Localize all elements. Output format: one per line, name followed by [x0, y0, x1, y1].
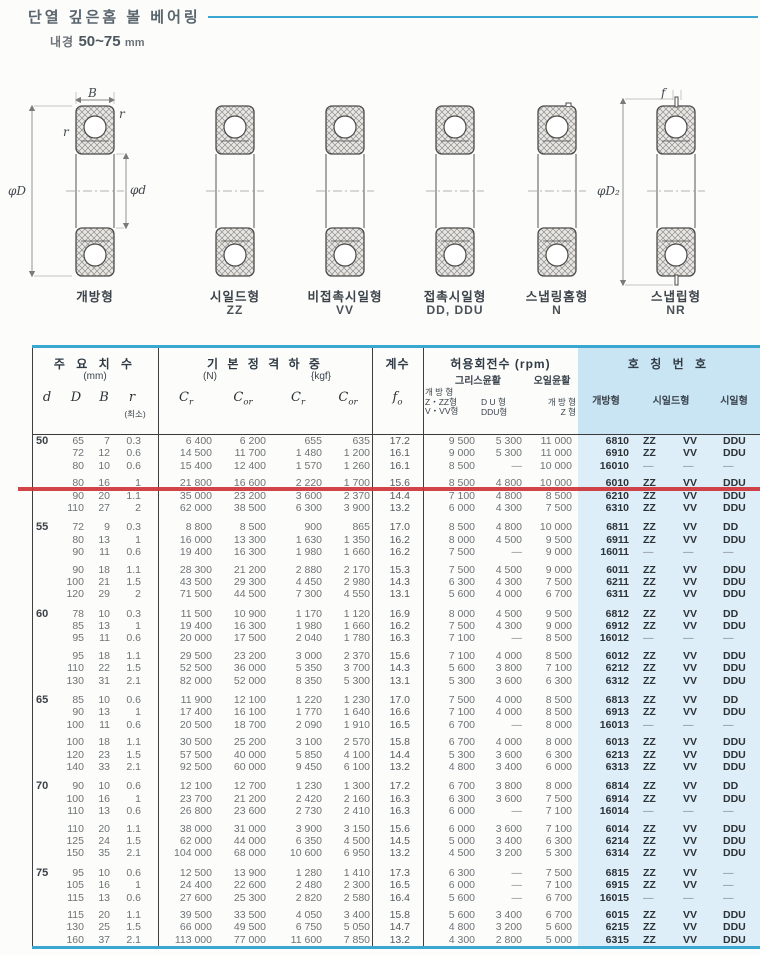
table-cell: — [718, 460, 760, 472]
bearing-table: 주 요 치 수 (mm) d D B r (최소) 기 본 정 격 하 중 (N… [32, 345, 760, 949]
table-cell: 21 [90, 576, 118, 588]
table-cell: 2 300 [324, 879, 372, 891]
table-cell: 3 150 [324, 823, 372, 835]
table-cell: ZZ [638, 534, 678, 546]
table-cell: 20 500 [158, 719, 214, 731]
table-cell: 16.1 [372, 460, 423, 472]
table-cell: 9 000 [526, 546, 578, 558]
table-cell: 3 600 [272, 490, 324, 502]
table-cell: 105 [58, 879, 90, 891]
bore-diameter-cell [32, 719, 58, 731]
bore-diameter-cell [32, 934, 58, 946]
table-cell: 0.6 [118, 780, 158, 792]
table-cell: 15.6 [372, 650, 423, 662]
header-col-cor: Cor [214, 390, 272, 408]
table-row: 160372.1113 00077 00011 6007 85013.24 30… [32, 934, 760, 946]
table-cell: VV [678, 921, 718, 933]
table-cell: 3 400 [479, 835, 526, 847]
table-cell: 16.9 [372, 608, 423, 620]
table-cell: 1 300 [324, 780, 372, 792]
table-cell: VV [678, 780, 718, 792]
table-cell: 4 300 [479, 576, 526, 588]
table-cell: 1 660 [324, 620, 372, 632]
table-cell: 13.2 [372, 502, 423, 514]
table-cell: 23 600 [214, 805, 272, 817]
table-cell: 16 300 [214, 546, 272, 558]
bore-diameter-cell [32, 793, 58, 805]
table-cell: 0.6 [118, 460, 158, 472]
table-cell: DDU [718, 921, 760, 933]
table-cell: — [638, 546, 678, 558]
table-cell: 14.3 [372, 662, 423, 674]
table-cell: 8 000 [526, 736, 578, 748]
bore-diameter-cell [32, 632, 58, 644]
table-cell: 6 300 [526, 835, 578, 847]
table-divider-factor [423, 348, 424, 946]
table-cell: 4 300 [479, 620, 526, 632]
page-title: 단열 깊은홈 볼 베어링 [28, 6, 201, 27]
table-cell: 6 000 [423, 879, 479, 891]
table-cell: 14.3 [372, 576, 423, 588]
table-cell: 17 400 [158, 706, 214, 718]
table-cell: 20 [90, 909, 118, 921]
table-cell: 68 000 [214, 847, 272, 859]
table-row: 9013117 40016 1001 7701 64016.67 1004 00… [32, 706, 760, 718]
table-cell: 2.1 [118, 675, 158, 687]
table-cell: 31 [90, 675, 118, 687]
table-cell: 13.2 [372, 934, 423, 946]
table-cell: 10 [90, 608, 118, 620]
table-cell: 9 500 [526, 534, 578, 546]
table-cell: 7 100 [526, 823, 578, 835]
table-cell: 14.7 [372, 921, 423, 933]
table-cell: DDU [718, 934, 760, 946]
table-cell: 6 100 [324, 761, 372, 773]
table-row: 8513119 40016 3001 9801 66016.27 5004 30… [32, 620, 760, 632]
table-cell: 5 300 [479, 447, 526, 459]
table-cell: DD [718, 780, 760, 792]
table-cell: — [479, 546, 526, 558]
header-col-cr: Cr [158, 390, 214, 408]
table-cell: 100 [58, 576, 90, 588]
table-cell: 12 700 [214, 780, 272, 792]
table-cell: VV [678, 675, 718, 687]
table-cell: 3 400 [479, 761, 526, 773]
table-cell: 110 [58, 662, 90, 674]
header-number-title: 호 칭 번 호 [578, 355, 760, 372]
table-cell: 125 [58, 835, 90, 847]
table-cell: 6215 [578, 921, 638, 933]
table-cell: 9 000 [526, 620, 578, 632]
table-cell: DDU [718, 502, 760, 514]
bore-diameter-cell [32, 761, 58, 773]
table-row: 130312.182 00052 0008 3505 30013.15 3003… [32, 675, 760, 687]
table-cell: 1.5 [118, 749, 158, 761]
table-cell: 13 300 [214, 534, 272, 546]
table-cell: — [479, 805, 526, 817]
table-cell: 1 230 [324, 694, 372, 706]
table-cell: 11 900 [158, 694, 214, 706]
table-cell: 635 [324, 435, 372, 447]
table-cell: 2 730 [272, 805, 324, 817]
table-cell: 90 [58, 546, 90, 558]
table-cell: 4 000 [479, 588, 526, 600]
table-cell: 72 [58, 521, 90, 533]
table-cell: ZZ [638, 608, 678, 620]
bore-diameter-cell [32, 620, 58, 632]
table-cell: 24 [90, 835, 118, 847]
table-row: 506570.36 4006 20065563517.29 5005 30011… [32, 435, 760, 447]
table-cell: 7 100 [526, 805, 578, 817]
table-cell: 7 100 [526, 879, 578, 891]
dim-r-label-left: r [63, 125, 70, 139]
table-cell: 10 [90, 694, 118, 706]
bore-diameter-cell [32, 490, 58, 502]
bore-diameter-cell [32, 805, 58, 817]
table-cell: — [718, 867, 760, 879]
header-col-B: B [90, 390, 118, 405]
table-cell: 90 [58, 490, 90, 502]
table-cell: 17.0 [372, 694, 423, 706]
table-cell: 18 [90, 736, 118, 748]
header-oil-label: 오일윤활 [526, 372, 578, 387]
table-cell: 7 500 [423, 620, 479, 632]
table-cell: 4 500 [423, 847, 479, 859]
table-cell: 2 410 [324, 805, 372, 817]
table-row: 115201.139 50033 5004 0503 40015.85 6003… [32, 909, 760, 921]
table-cell: 23 200 [214, 490, 272, 502]
table-cell: 0.3 [118, 608, 158, 620]
table-cell: 7 500 [526, 502, 578, 514]
table-cell: 23 700 [158, 793, 214, 805]
table-cell: 18 700 [214, 719, 272, 731]
header-number-shielded: 시일드형 [638, 392, 704, 407]
table-cell: 5 600 [526, 921, 578, 933]
table-row: 115130.627 60025 3002 8202 58016.45 600—… [32, 892, 760, 904]
table-cell: 130 [58, 675, 90, 687]
table-cell: — [479, 892, 526, 904]
table-row: 80100.615 40012 4001 5701 26016.18 500—1… [32, 460, 760, 472]
table-row: 120231.557 50040 0005 8504 10014.45 3003… [32, 749, 760, 761]
table-cell: ZZ [638, 793, 678, 805]
table-cell: 1 770 [272, 706, 324, 718]
table-cell: 0.6 [118, 546, 158, 558]
table-cell: 90 [58, 564, 90, 576]
table-cell: 13 [90, 620, 118, 632]
table-cell: ZZ [638, 675, 678, 687]
table-cell: ZZ [638, 650, 678, 662]
table-cell: 1 910 [324, 719, 372, 731]
table-cell: 5 300 [324, 675, 372, 687]
table-cell: DDU [718, 823, 760, 835]
table-row: 90110.619 40016 3001 9801 66016.27 500—9… [32, 546, 760, 558]
table-cell: 5 600 [423, 662, 479, 674]
header-col-d: d [32, 390, 62, 405]
table-cell: 33 [90, 761, 118, 773]
table-cell: 0.6 [118, 694, 158, 706]
table-row: 72120.614 50011 7001 4801 20016.19 0005 … [32, 447, 760, 459]
table-cell: 2.1 [118, 761, 158, 773]
table-cell: 95 [58, 632, 90, 644]
table-cell: 3 600 [479, 823, 526, 835]
table-cell: 6814 [578, 780, 638, 792]
table-cell: DDU [718, 564, 760, 576]
table-row: 90181.128 30021 2002 8802 17015.37 5004 … [32, 564, 760, 576]
table-cell: 1 [118, 879, 158, 891]
table-cell: DDU [718, 749, 760, 761]
red-marker-line [18, 487, 760, 491]
table-cell: 85 [58, 620, 90, 632]
bearing-diagram-contact-seal [412, 88, 498, 298]
table-cell: 65 [58, 435, 90, 447]
table-cell: 16.3 [372, 793, 423, 805]
table-row: 95181.129 50023 2003 0002 37015.67 1004 … [32, 650, 760, 662]
table-cell: 3 600 [479, 793, 526, 805]
table-cell: 5 600 [423, 909, 479, 921]
table-cell: DDU [718, 650, 760, 662]
table-cell: 6 200 [214, 435, 272, 447]
bore-diameter-cell [32, 564, 58, 576]
table-cell: 3 800 [479, 780, 526, 792]
table-cell: 13.2 [372, 761, 423, 773]
table-cell: 110 [58, 805, 90, 817]
table-cell: 6 300 [272, 502, 324, 514]
table-cell: 8 500 [526, 706, 578, 718]
table-cell: 24 400 [158, 879, 214, 891]
table-cell: 3 100 [272, 736, 324, 748]
table-cell: 2 160 [324, 793, 372, 805]
table-cell: 6 350 [272, 835, 324, 847]
table-cell: 2.1 [118, 847, 158, 859]
table-cell: 2 980 [324, 576, 372, 588]
table-cell: 1.5 [118, 835, 158, 847]
bore-diameter-cell [32, 879, 58, 891]
table-cell: 0.6 [118, 805, 158, 817]
table-cell: VV [678, 662, 718, 674]
table-cell: — [678, 719, 718, 731]
table-cell: 1 660 [324, 546, 372, 558]
header-col-D: D [60, 390, 92, 405]
table-cell: 17.0 [372, 521, 423, 533]
table-cell: 1 480 [272, 447, 324, 459]
table-cell: 16010 [578, 460, 638, 472]
catalog-page: 단열 깊은홈 볼 베어링 내경 50~75 mm B r r φD φd [0, 0, 760, 955]
bore-diameter-cell [32, 576, 58, 588]
table-cell: 3 900 [272, 823, 324, 835]
table-cell: 6 300 [423, 793, 479, 805]
table-cell: 160 [58, 934, 90, 946]
table-cell: 8 350 [272, 675, 324, 687]
table-cell: 2 040 [272, 632, 324, 644]
bore-diameter-cell: 50 [32, 435, 58, 447]
table-cell: 92 500 [158, 761, 214, 773]
table-cell: DDU [718, 847, 760, 859]
table-cell: 5 000 [423, 835, 479, 847]
table-cell: 6 000 [423, 805, 479, 817]
table-cell: VV [678, 447, 718, 459]
table-cell: 6 400 [158, 435, 214, 447]
table-cell: — [718, 546, 760, 558]
table-cell: 11 [90, 719, 118, 731]
table-cell: 82 000 [158, 675, 214, 687]
table-cell: ZZ [638, 934, 678, 946]
table-cell: 0.3 [118, 435, 158, 447]
table-cell: 21 200 [214, 793, 272, 805]
table-cell: 44 000 [214, 835, 272, 847]
table-cell: 12 100 [158, 780, 214, 792]
table-cell: 6 000 [423, 823, 479, 835]
table-cell: 11 500 [158, 608, 214, 620]
table-cell: 14.5 [372, 835, 423, 847]
table-cell: 1 980 [272, 546, 324, 558]
table-cell: 1 630 [272, 534, 324, 546]
table-cell: 1 350 [324, 534, 372, 546]
table-cell: 16 000 [158, 534, 214, 546]
table-cell: 8 500 [526, 632, 578, 644]
table-cell: 7 100 [526, 662, 578, 674]
table-cell: 4 800 [479, 521, 526, 533]
table-cell: — [718, 879, 760, 891]
table-cell: 100 [58, 793, 90, 805]
table-divider-loads [372, 348, 373, 946]
table-cell: ZZ [638, 694, 678, 706]
bearing-diagram-open: B r r φD φd [8, 88, 158, 298]
table-cell: 16.2 [372, 534, 423, 546]
table-cell: 100 [58, 719, 90, 731]
bore-diameter-cell [32, 847, 58, 859]
table-cell: 2 580 [324, 892, 372, 904]
table-cell: 52 000 [214, 675, 272, 687]
table-cell: 1.1 [118, 650, 158, 662]
table-cell: 2 570 [324, 736, 372, 748]
table-cell: 60 000 [214, 761, 272, 773]
dim-phiD2-label: φD₂ [597, 184, 620, 198]
table-cell: 6311 [578, 588, 638, 600]
table-cell: 5 300 [526, 847, 578, 859]
table-cell: 16015 [578, 892, 638, 904]
table-cell: 21 200 [214, 564, 272, 576]
table-cell: 5 300 [423, 675, 479, 687]
table-row: 90201.135 00023 2003 6002 37014.47 1004 … [32, 490, 760, 502]
table-cell: 31 000 [214, 823, 272, 835]
bore-range-value: 50~75 [78, 33, 120, 50]
table-cell: 4 100 [324, 749, 372, 761]
bore-diameter-cell [32, 447, 58, 459]
table-cell: 12 [90, 447, 118, 459]
table-cell: 8 500 [214, 521, 272, 533]
table-cell: 6011 [578, 564, 638, 576]
table-cell: — [638, 460, 678, 472]
table-cell: 6 300 [526, 675, 578, 687]
table-row: 10516124 40022 6002 4802 30016.56 000—7 … [32, 879, 760, 891]
bore-diameter-cell [32, 662, 58, 674]
table-cell: 115 [58, 892, 90, 904]
table-cell: 7 100 [423, 650, 479, 662]
table-row: 130251.566 00049 5006 7505 05014.74 8003… [32, 921, 760, 933]
table-cell: 16 [90, 793, 118, 805]
table-cell: 6210 [578, 490, 638, 502]
table-cell: 25 [90, 921, 118, 933]
table-cell: 4 300 [423, 934, 479, 946]
table-cell: 16.2 [372, 546, 423, 558]
table-cell: 6913 [578, 706, 638, 718]
table-cell: 80 [58, 460, 90, 472]
table-cell: 4 500 [479, 608, 526, 620]
table-cell: 13.1 [372, 675, 423, 687]
bore-range: 내경 50~75 mm [50, 33, 144, 50]
table-cell: 7 100 [423, 706, 479, 718]
bearing-diagrams: B r r φD φd f [0, 88, 760, 338]
table-cell: VV [678, 521, 718, 533]
table-cell: 4 550 [324, 588, 372, 600]
table-cell: ZZ [638, 576, 678, 588]
table-cell: 14.4 [372, 490, 423, 502]
table-cell: 1.1 [118, 736, 158, 748]
table-cell: 5 050 [324, 921, 372, 933]
table-cell: 35 [90, 847, 118, 859]
table-cell: VV [678, 564, 718, 576]
table-cell: — [678, 460, 718, 472]
table-cell: 900 [272, 521, 324, 533]
table-row: 110201.138 00031 0003 9003 15015.66 0003… [32, 823, 760, 835]
table-cell: VV [678, 435, 718, 447]
table-cell: 120 [58, 588, 90, 600]
table-cell: 3 400 [479, 909, 526, 921]
table-cell: 39 500 [158, 909, 214, 921]
bore-diameter-cell: 60 [32, 608, 58, 620]
table-cell: 66 000 [158, 921, 214, 933]
table-cell: — [479, 460, 526, 472]
bore-diameter-cell [32, 460, 58, 472]
table-cell: 4 000 [479, 736, 526, 748]
table-cell: 1.1 [118, 909, 158, 921]
table-cell: 4 000 [479, 694, 526, 706]
table-cell: 113 000 [158, 934, 214, 946]
table-row: 100211.543 50029 3004 4502 98014.36 3004… [32, 576, 760, 588]
table-cell: ZZ [638, 847, 678, 859]
table-cell: 0.6 [118, 867, 158, 879]
table-cell: VV [678, 706, 718, 718]
table-cell: 18 [90, 650, 118, 662]
table-cell: DDU [718, 675, 760, 687]
table-cell: 12 500 [158, 867, 214, 879]
table-cell: 17.2 [372, 435, 423, 447]
table-cell: 6 000 [526, 761, 578, 773]
table-cell: 19 400 [158, 620, 214, 632]
table-cell: 1 980 [272, 620, 324, 632]
table-cell: 2 370 [324, 490, 372, 502]
table-cell: DD [718, 694, 760, 706]
bore-diameter-cell [32, 546, 58, 558]
table-cell: 6312 [578, 675, 638, 687]
table-cell: 10 [90, 867, 118, 879]
table-cell: 23 200 [214, 650, 272, 662]
header-number-open: 개방형 [578, 392, 634, 407]
table-row: 125241.562 00044 0006 3504 50014.55 0003… [32, 835, 760, 847]
table-cell: 17 500 [214, 632, 272, 644]
bore-diameter-cell [32, 534, 58, 546]
table-cell: 16.3 [372, 805, 423, 817]
header-col-r: r [116, 390, 148, 405]
table-cell: VV [678, 934, 718, 946]
table-cell: 3 700 [324, 662, 372, 674]
table-cell: 38 500 [214, 502, 272, 514]
table-cell: DDU [718, 662, 760, 674]
table-cell: ZZ [638, 835, 678, 847]
table-cell: 150 [58, 847, 90, 859]
table-cell: 22 [90, 662, 118, 674]
table-cell: ZZ [638, 447, 678, 459]
